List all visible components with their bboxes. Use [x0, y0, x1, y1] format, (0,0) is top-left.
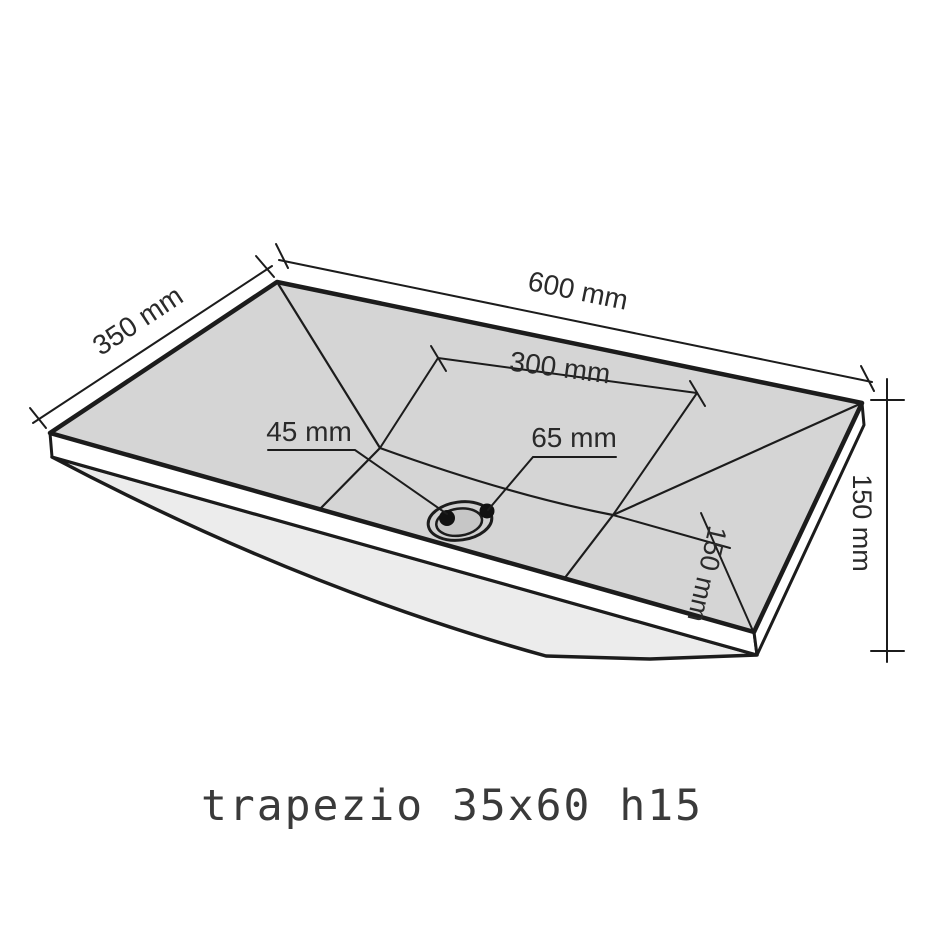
dim-label-45mm: 45 mm	[266, 416, 352, 447]
dim-label-height-150mm: 150 mm	[847, 474, 877, 572]
dim-tick	[30, 408, 46, 428]
drain-marker-dot-left	[439, 510, 455, 526]
dim-tick	[276, 244, 288, 268]
basin-body	[50, 282, 864, 659]
technical-drawing-page: 350 mm 600 mm 300 mm 150 mm	[0, 0, 950, 950]
basin-dimension-drawing: 350 mm 600 mm 300 mm 150 mm	[0, 0, 950, 950]
dim-label-65mm: 65 mm	[531, 422, 617, 453]
dim-label-600mm: 600 mm	[525, 265, 630, 316]
dim-tick	[861, 366, 874, 391]
drawing-caption: trapezio 35x60 h15	[201, 781, 703, 831]
